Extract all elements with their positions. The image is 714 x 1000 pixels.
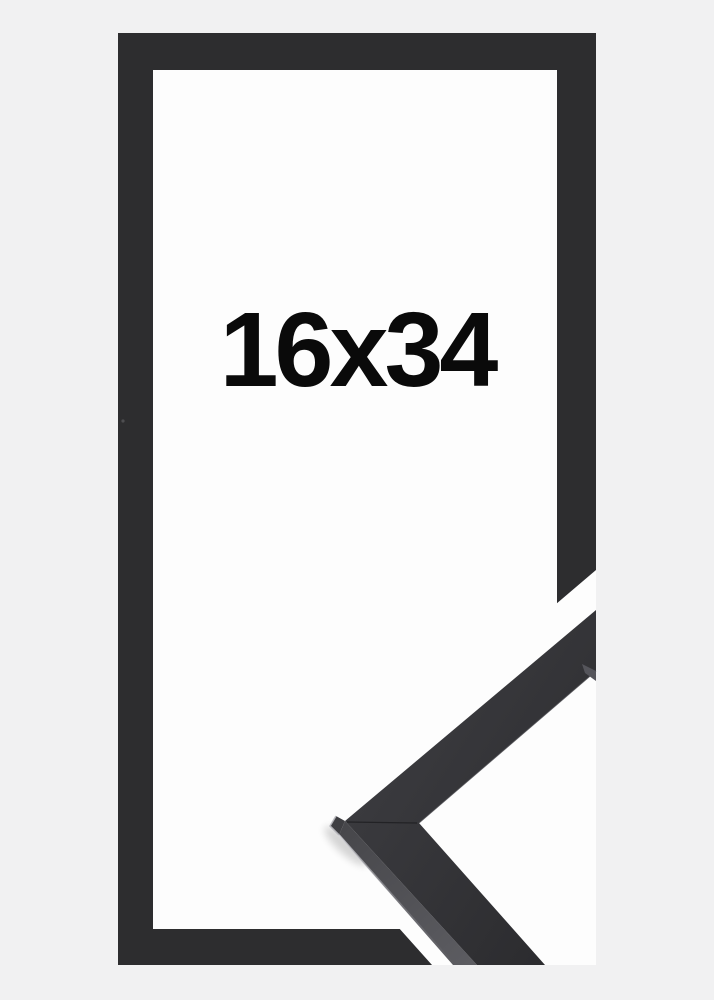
frame-texture-speck <box>121 419 124 422</box>
frame-illustration <box>0 0 714 1000</box>
product-image: 16x34 <box>0 0 714 1000</box>
size-label: 16x34 <box>0 297 714 403</box>
